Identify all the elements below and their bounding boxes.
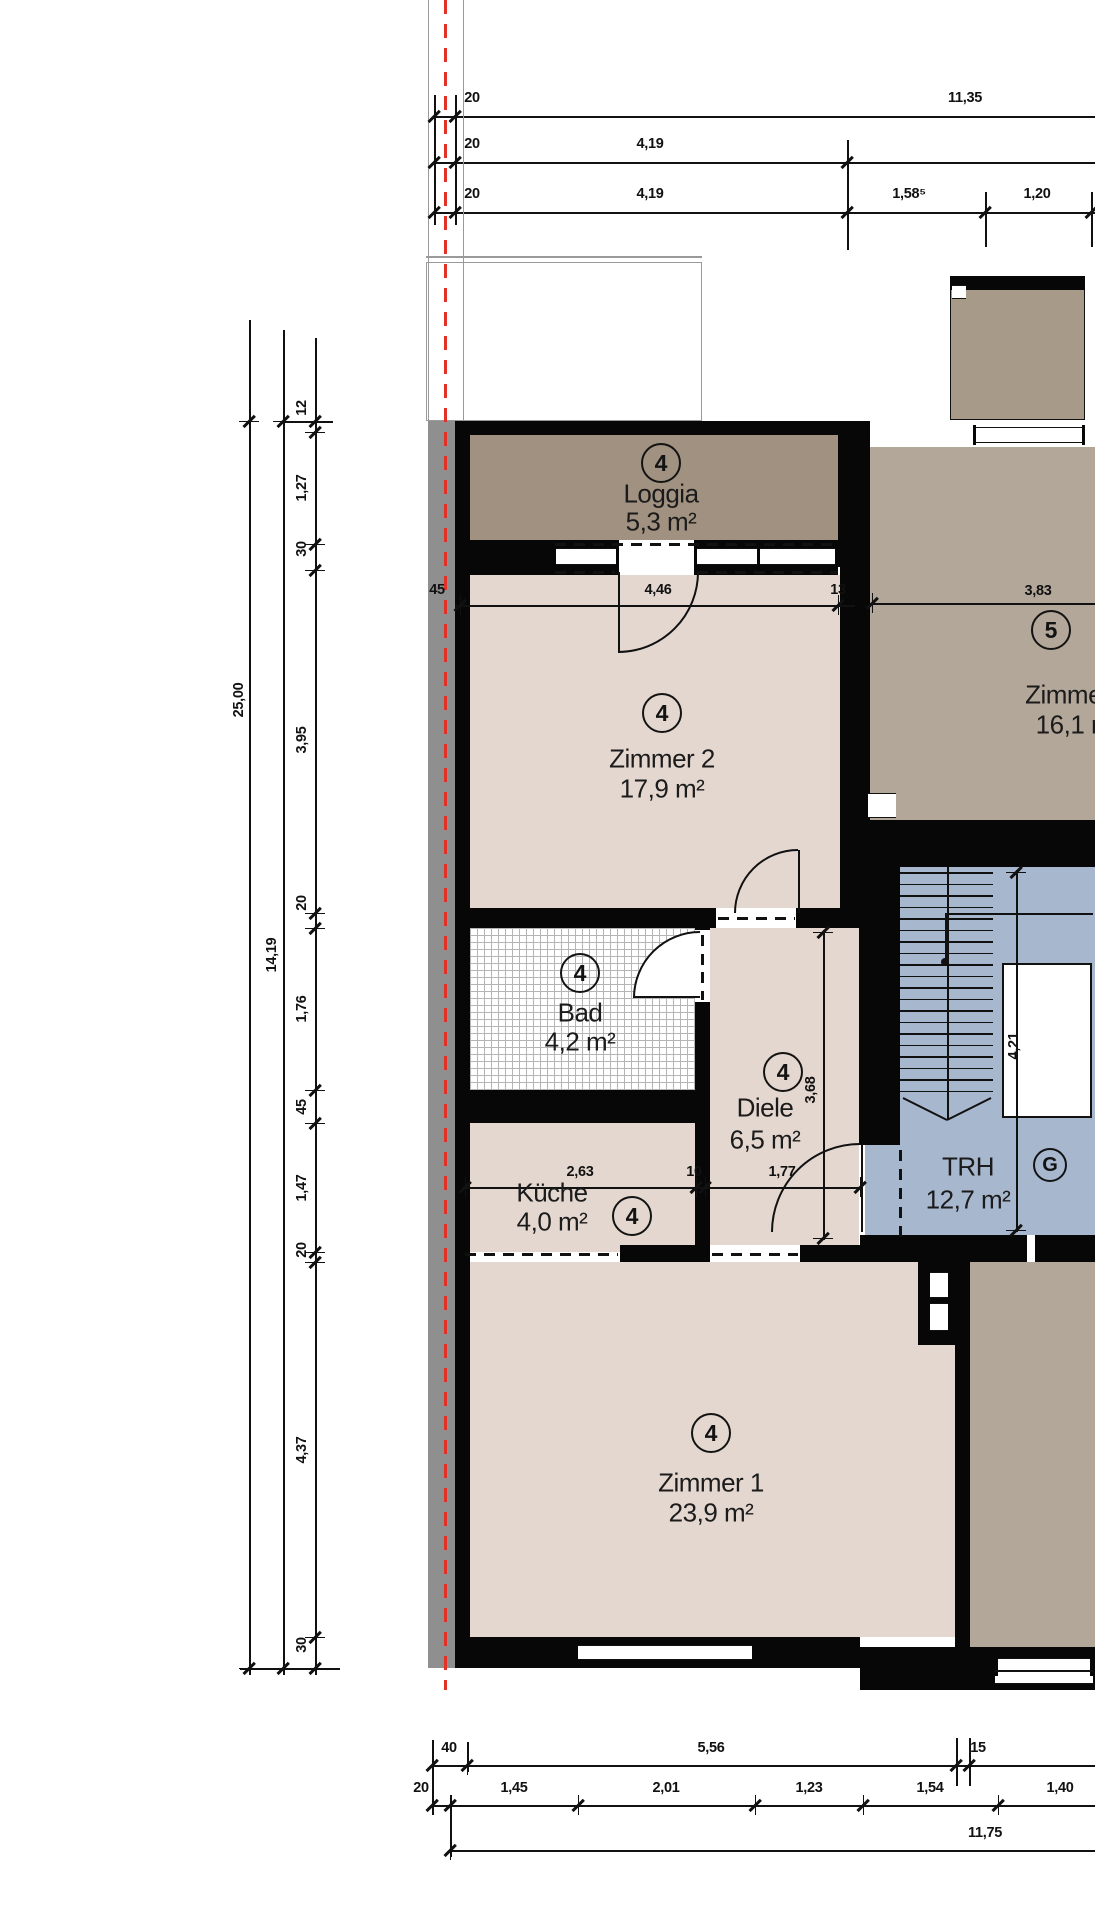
- dim-label-interior: 1,77: [768, 1164, 795, 1180]
- room-name-kueche: Küche: [516, 1178, 587, 1209]
- room-area-zimmer3: 16,1 m²: [1036, 710, 1095, 741]
- dim-label-left: 30: [294, 541, 310, 557]
- dim-label-top: 4,19: [636, 186, 663, 202]
- room-name-zimmer1: Zimmer 1: [658, 1468, 764, 1499]
- dim-label-left: 30: [294, 1637, 310, 1653]
- room-area-diele: 6,5 m²: [730, 1125, 801, 1156]
- dim-label-left: 1,47: [294, 1174, 310, 1201]
- dim-label-interior: 4,46: [644, 582, 671, 598]
- dim-label-top: 11,35: [948, 90, 982, 106]
- room-area-trh: 12,7 m²: [926, 1185, 1011, 1216]
- room-tag-kueche: 4: [612, 1196, 652, 1236]
- dim-label-interior: 10: [686, 1164, 702, 1180]
- dim-label-interior: 45: [429, 582, 445, 598]
- room-tag-bad: 4: [560, 953, 600, 993]
- room-area-loggia: 5,3 m²: [626, 507, 697, 538]
- dim-label-interior: 4,21: [1006, 1032, 1022, 1059]
- dim-label-left: 12: [294, 400, 310, 416]
- room-name-bad: Bad: [558, 998, 603, 1029]
- dim-label-left: 1,27: [294, 474, 310, 501]
- door-swing-arc: [772, 1144, 860, 1232]
- dim-label-left: 25,00: [231, 683, 247, 718]
- room-name-loggia: Loggia: [623, 479, 698, 510]
- room-area-kueche: 4,0 m²: [517, 1207, 588, 1238]
- door-swing-arc: [735, 850, 798, 913]
- stair-arrow-line: [947, 1098, 991, 1120]
- room-tag-diele: 4: [763, 1052, 803, 1092]
- room-tag-zimmer3: 5: [1031, 610, 1071, 650]
- room-tag-loggia: 4: [641, 443, 681, 483]
- dim-label-bottom: 1,54: [916, 1780, 943, 1796]
- room-tag-zimmer1: 4: [691, 1413, 731, 1453]
- dim-label-left: 20: [294, 1242, 310, 1258]
- room-tag-trh: G: [1033, 1148, 1067, 1182]
- dim-label-left: 1,76: [294, 995, 310, 1022]
- room-area-zimmer1: 23,9 m²: [669, 1498, 754, 1529]
- dim-label-left: 45: [294, 1099, 310, 1115]
- dim-label-top: 20: [464, 90, 480, 106]
- dim-label-interior: 3,83: [1024, 583, 1051, 599]
- dim-label-top: 1,58⁵: [892, 186, 926, 202]
- dim-label-top: 4,19: [636, 136, 663, 152]
- dim-label-bottom: 15: [970, 1740, 986, 1756]
- room-area-bad: 4,2 m²: [545, 1027, 616, 1058]
- dim-label-bottom: 11,75: [968, 1825, 1002, 1841]
- dim-label-bottom: 2,01: [652, 1780, 679, 1796]
- dim-label-left: 20: [294, 895, 310, 911]
- dim-label-bottom: 20: [413, 1780, 429, 1796]
- dim-label-bottom: 1,40: [1046, 1780, 1073, 1796]
- floor-plan: 2011,35204,19204,191,58⁵1,20454,46133,83…: [0, 0, 1095, 1920]
- arcs-overlay: [0, 0, 1095, 1920]
- dim-label-left: 3,95: [294, 726, 310, 753]
- dim-label-top: 20: [464, 186, 480, 202]
- dim-label-interior: 13: [830, 582, 846, 598]
- room-area-zimmer2: 17,9 m²: [620, 774, 705, 805]
- room-name-zimmer2: Zimmer 2: [609, 744, 715, 775]
- dim-label-bottom: 5,56: [697, 1740, 724, 1756]
- dim-label-interior: 3,68: [803, 1076, 819, 1103]
- room-name-zimmer3: Zimmer 3: [1025, 680, 1095, 711]
- dim-label-top: 1,20: [1023, 186, 1050, 202]
- dim-label-bottom: 40: [441, 1740, 457, 1756]
- room-name-trh: TRH: [942, 1152, 994, 1183]
- room-name-diele: Diele: [737, 1093, 794, 1124]
- dim-label-left: 14,19: [264, 938, 280, 973]
- dim-label-top: 20: [464, 136, 480, 152]
- dim-label-bottom: 1,23: [795, 1780, 822, 1796]
- dim-label-bottom: 1,45: [500, 1780, 527, 1796]
- dim-label-left: 4,37: [294, 1436, 310, 1463]
- room-tag-zimmer2: 4: [642, 693, 682, 733]
- door-swing-arc: [634, 932, 700, 998]
- stair-arrow-line: [903, 1098, 947, 1120]
- floorplan-page: Wohnungsgrundriss Obergeschoss 2011,3520…: [0, 0, 1095, 1920]
